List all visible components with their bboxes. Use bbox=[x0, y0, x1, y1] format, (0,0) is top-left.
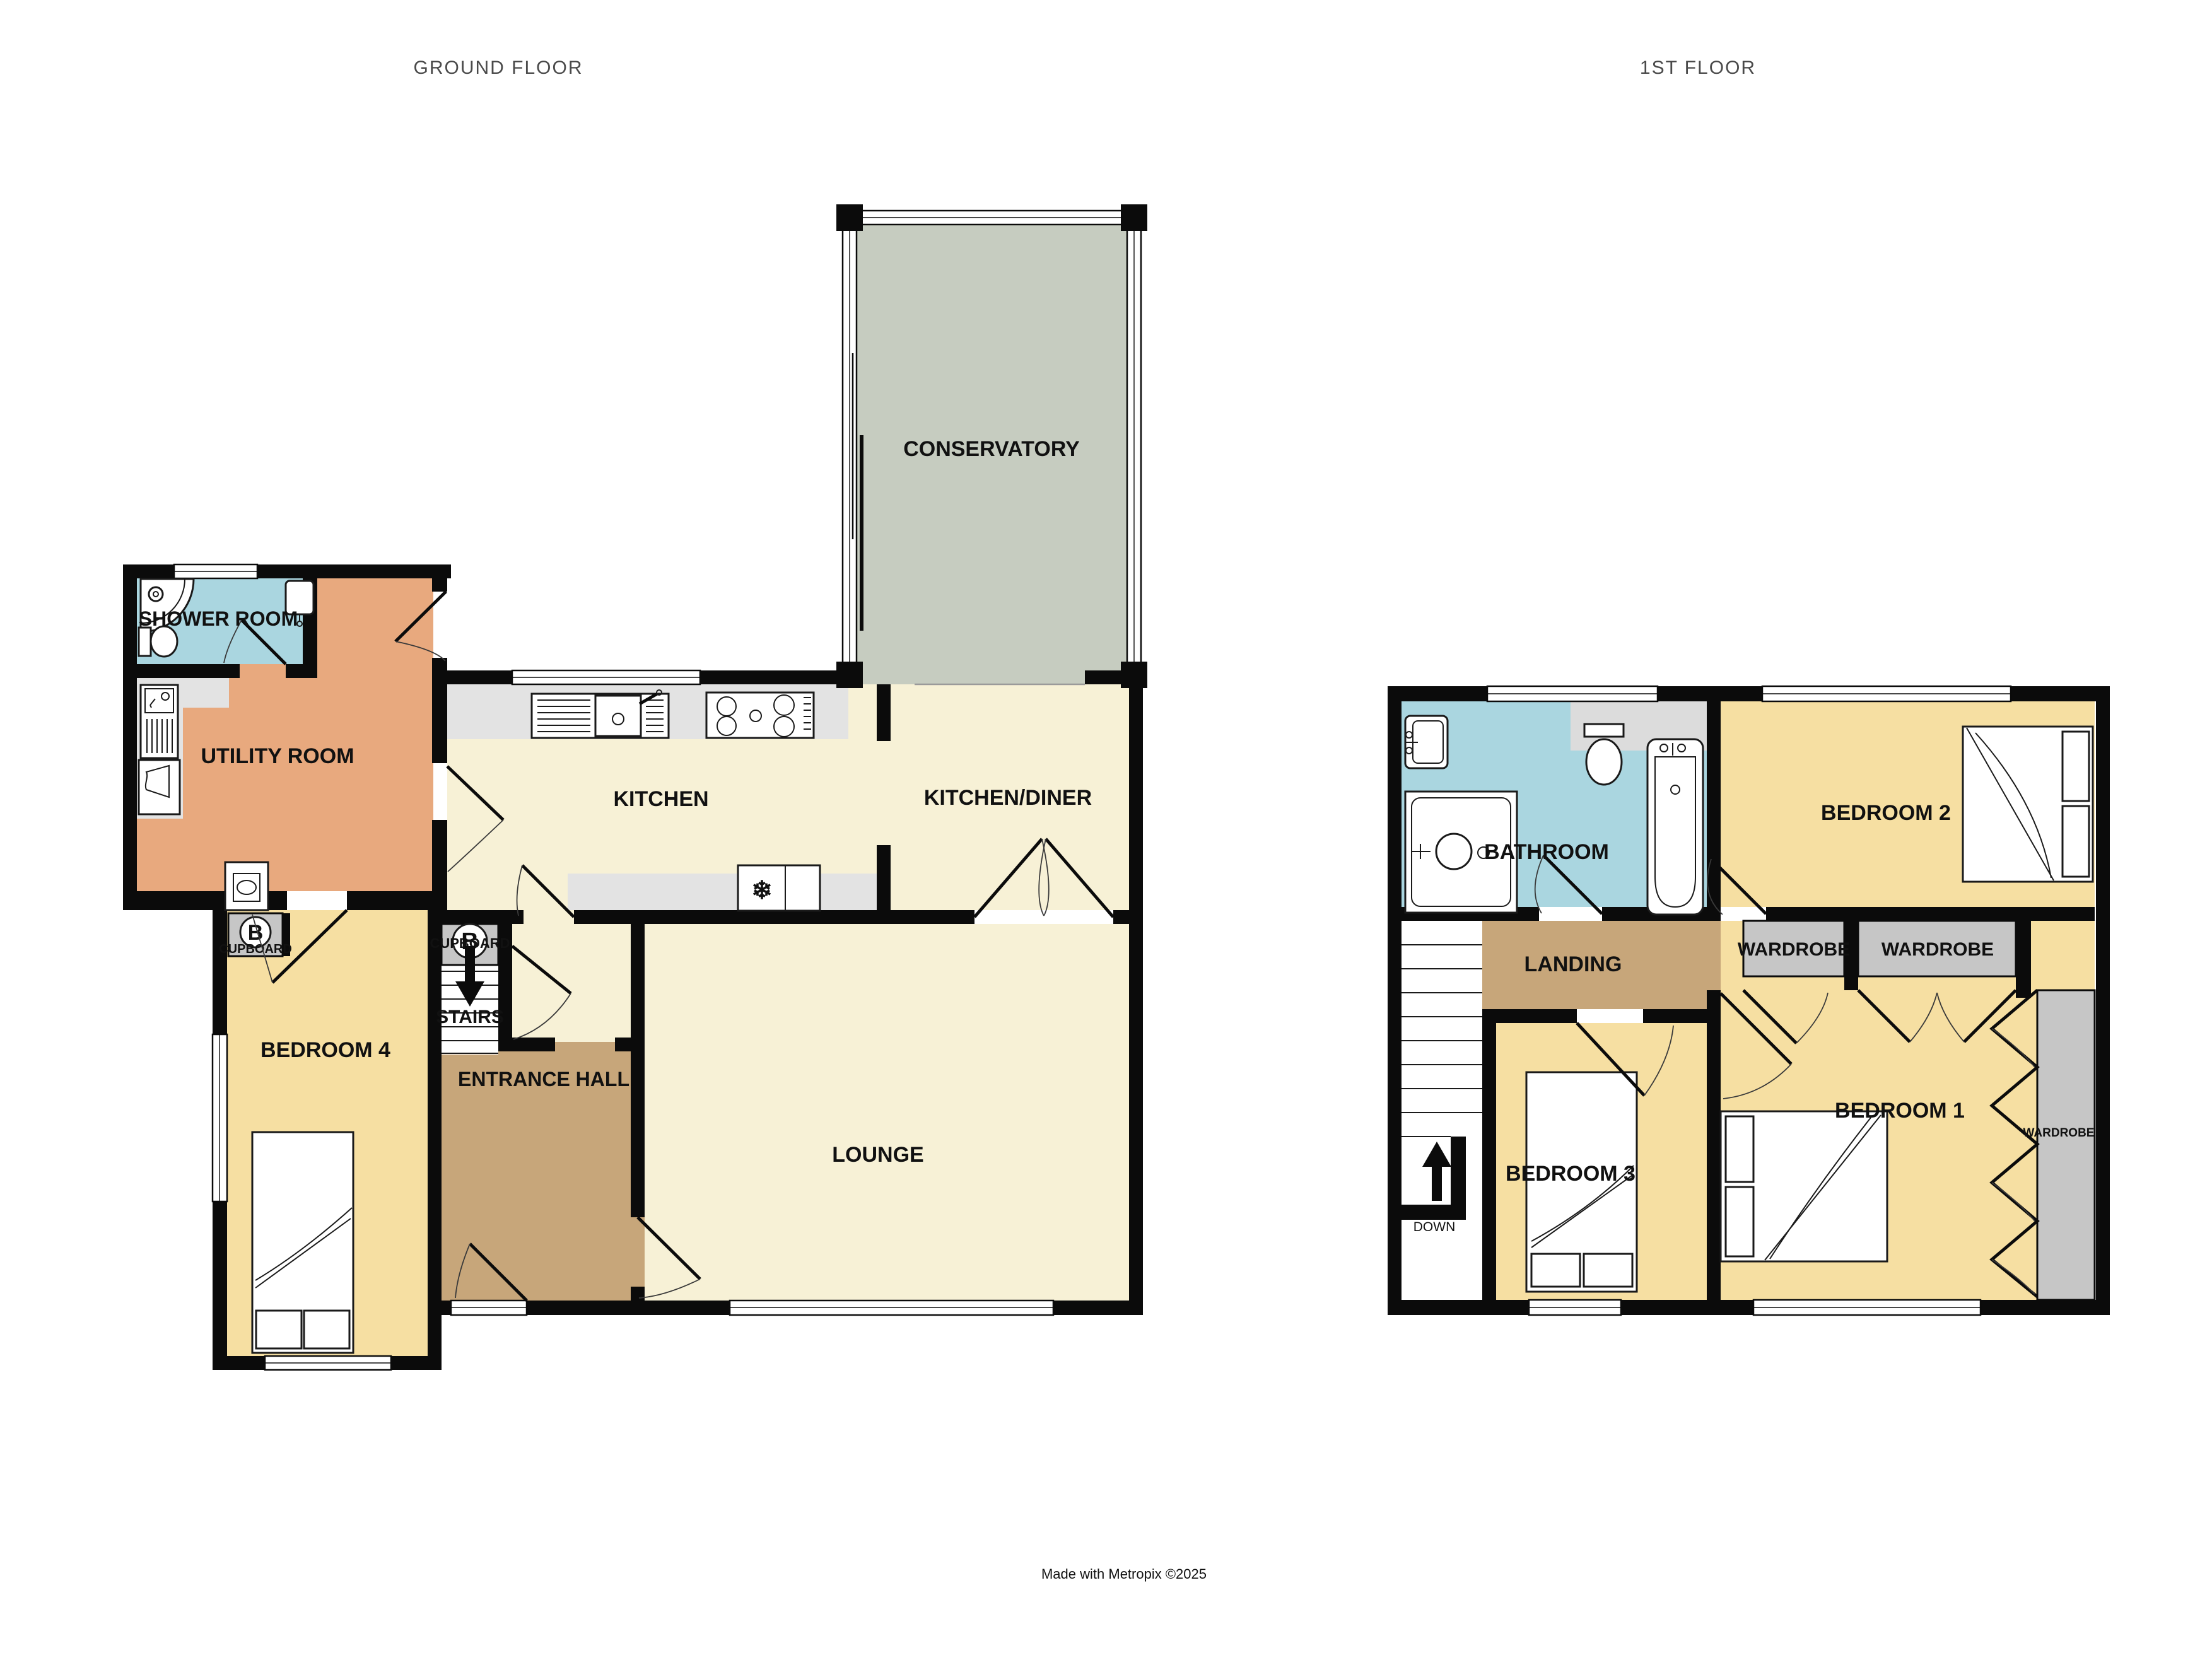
bedroom3-label: BEDROOM 3 bbox=[1506, 1162, 1636, 1186]
utility-sink-icon bbox=[141, 685, 178, 758]
bathroom-label: BATHROOM bbox=[1484, 840, 1609, 864]
bedroom2-label: BEDROOM 2 bbox=[1821, 801, 1951, 825]
shower-room-label: SHOWER ROOM bbox=[139, 607, 298, 630]
floorplan-svg: ❄ B CUPBOARD B CUPBOARD bbox=[0, 0, 2212, 1672]
fridge-icon: ❄ bbox=[738, 865, 820, 911]
bedroom1-bed-icon bbox=[1721, 1111, 1887, 1261]
washing-machine-icon bbox=[225, 862, 268, 910]
lounge-floor bbox=[631, 924, 1129, 1301]
entrance-hall-label: ENTRANCE HALL bbox=[458, 1068, 629, 1090]
first-floor-plan: BATHROOM BEDROOM 2 LANDING WARDROBE WARD… bbox=[1388, 686, 2110, 1315]
toilet-icon bbox=[1584, 724, 1624, 785]
first-floor-title: 1ST FLOOR bbox=[1640, 57, 1756, 78]
kitchen-counter-bottom bbox=[568, 874, 877, 910]
bathroom-sink-icon bbox=[1405, 716, 1448, 768]
wardrobe-right-label: WARDROBE bbox=[1881, 939, 1994, 960]
kitchen-diner-label: KITCHEN/DINER bbox=[924, 786, 1092, 810]
corridor-floor bbox=[498, 910, 645, 1051]
cupboard-label: CUPBOARD bbox=[219, 942, 292, 956]
credit-text: Made with Metropix ©2025 bbox=[1041, 1566, 1207, 1582]
down-label: DOWN bbox=[1413, 1220, 1456, 1234]
kitchen-sink-icon bbox=[532, 690, 669, 738]
hob-icon bbox=[706, 693, 814, 738]
stairs-label: STAIRS bbox=[436, 1007, 504, 1027]
wardrobe-side-label: WARDROBE bbox=[2023, 1126, 2095, 1140]
kitchen-label: KITCHEN bbox=[613, 787, 708, 811]
ground-floor-plan: ❄ B CUPBOARD B CUPBOARD bbox=[123, 204, 1147, 1370]
bath-icon bbox=[1647, 739, 1703, 915]
bedroom4-bed-icon bbox=[252, 1132, 353, 1353]
conservatory-label: CONSERVATORY bbox=[903, 437, 1080, 461]
dryer-icon bbox=[139, 760, 180, 814]
wardrobe-side-box bbox=[2037, 990, 2095, 1300]
bedroom2-bed-icon bbox=[1963, 727, 2093, 882]
landing-label: LANDING bbox=[1524, 952, 1622, 976]
stairwell-floor bbox=[1402, 921, 1482, 1300]
toilet-icon bbox=[139, 626, 177, 657]
cupboard-left: B CUPBOARD bbox=[219, 913, 292, 956]
wardrobe-left-label: WARDROBE bbox=[1738, 939, 1850, 960]
fridge-snowflake: ❄ bbox=[751, 877, 773, 904]
bedroom4-label: BEDROOM 4 bbox=[260, 1038, 390, 1062]
utility-room-label: UTILITY ROOM bbox=[201, 744, 354, 768]
ground-floor-title: GROUND FLOOR bbox=[413, 57, 583, 78]
bedroom1-label: BEDROOM 1 bbox=[1835, 1099, 1965, 1123]
lounge-label: LOUNGE bbox=[832, 1143, 923, 1167]
floorplan-canvas: ❄ B CUPBOARD B CUPBOARD bbox=[0, 0, 2212, 1672]
